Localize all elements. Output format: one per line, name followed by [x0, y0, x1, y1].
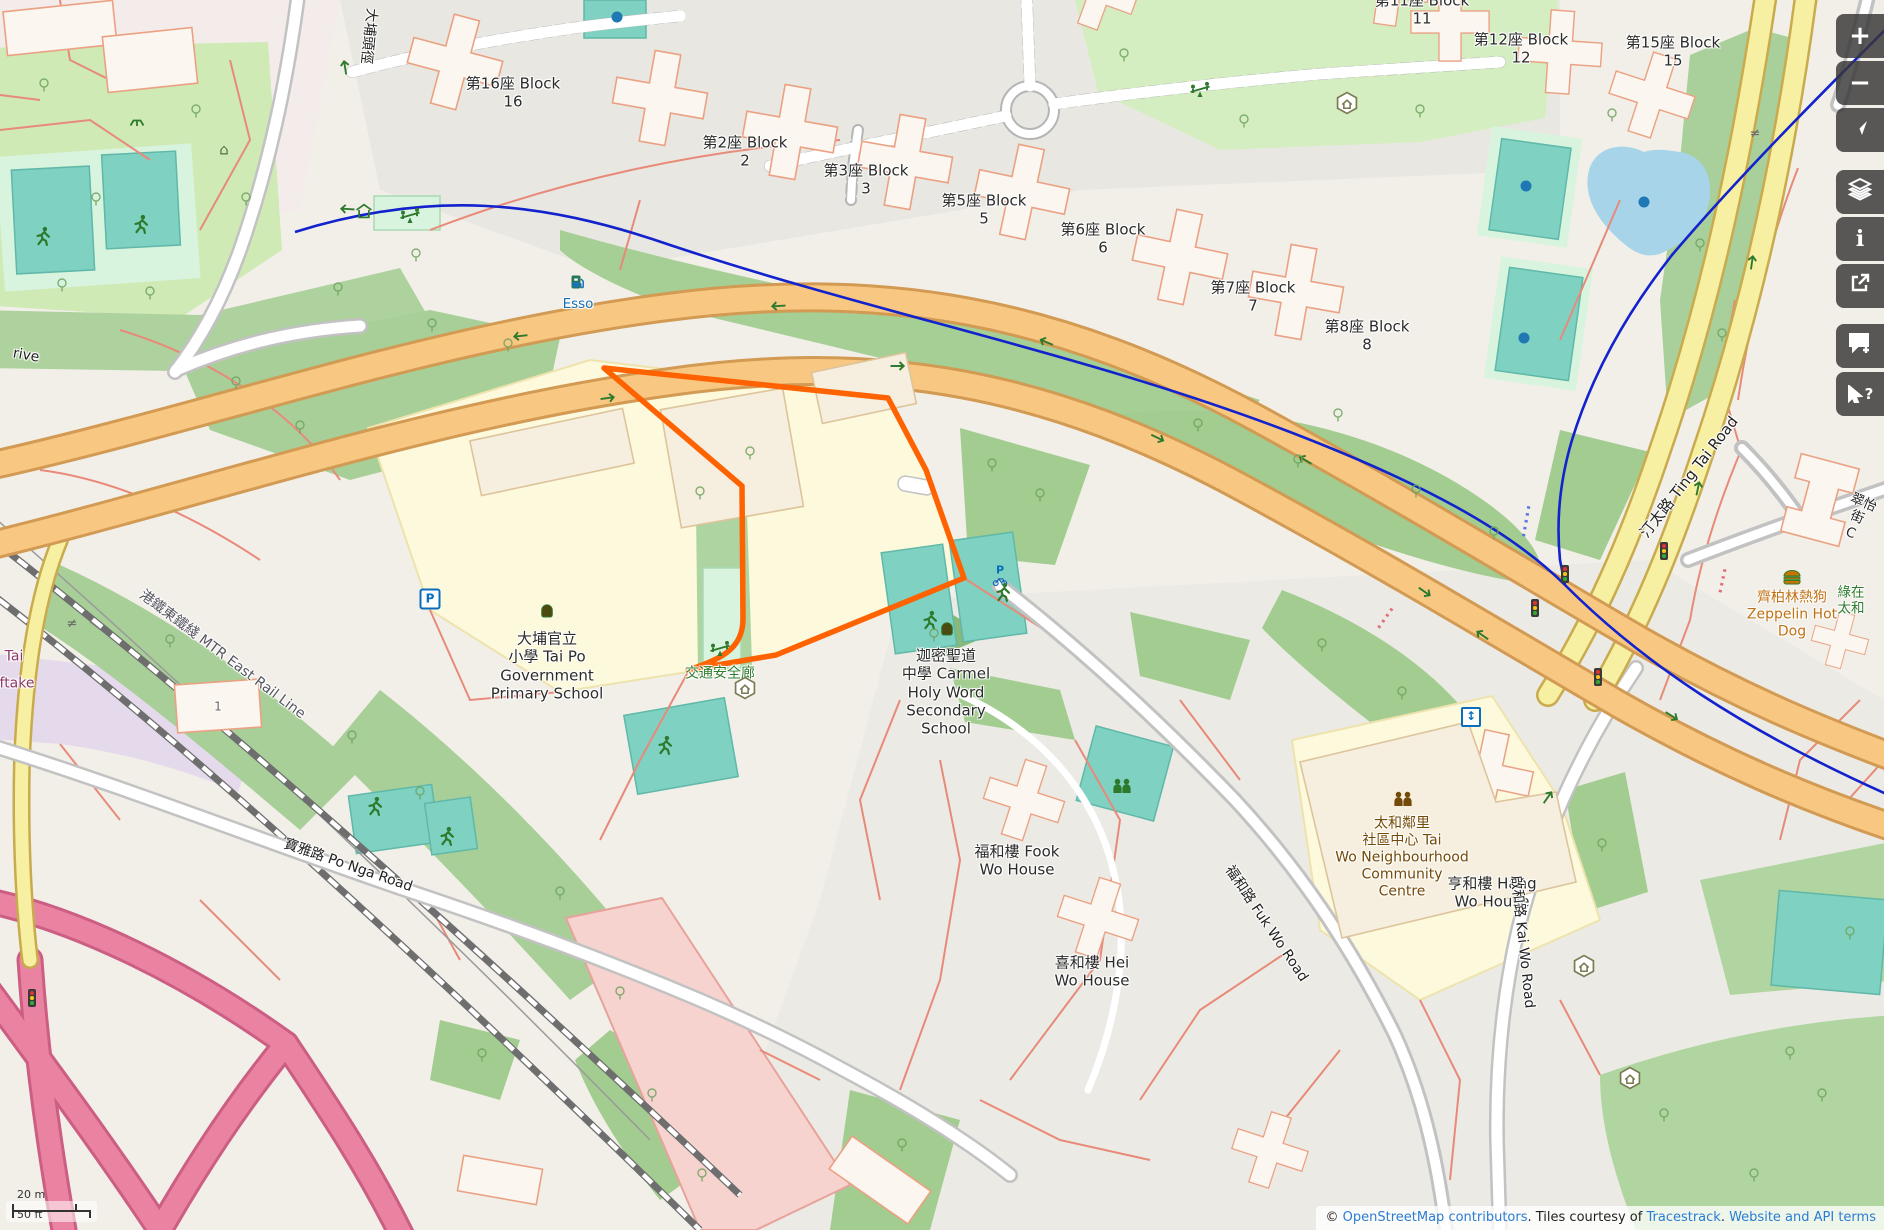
zoom-out-button[interactable]: − — [1836, 61, 1884, 105]
tree-icon — [1785, 1046, 1796, 1060]
tree-icon — [647, 1088, 658, 1102]
tree-icon — [1119, 48, 1130, 62]
elevator-icon: ↕ — [1461, 707, 1481, 727]
tree-icon — [1489, 526, 1500, 540]
attribution: © OpenStreetMap contributors. Tiles cour… — [1316, 1206, 1884, 1230]
tree-icon — [231, 376, 242, 390]
arrow-icon — [769, 300, 787, 312]
arrow-icon — [338, 203, 356, 215]
attribution-copyright: © — [1326, 1210, 1343, 1225]
shelter-icon — [356, 204, 373, 219]
fountain-icon — [1519, 333, 1530, 344]
tree-icon — [241, 192, 252, 206]
label-block-7: 第7座 Block 7 — [1211, 279, 1296, 316]
label-block-16: 第16座 Block 16 — [466, 75, 560, 112]
tree-icon — [987, 458, 998, 472]
community-icon — [1393, 792, 1414, 807]
traffic-light-icon — [28, 989, 36, 1007]
hexshelter-icon — [1573, 955, 1596, 978]
seesaw-icon — [708, 641, 732, 657]
school-icon — [939, 621, 956, 637]
tree-icon — [1659, 1108, 1670, 1122]
layers-button[interactable] — [1836, 170, 1884, 214]
fuel-icon — [570, 274, 586, 290]
tree-icon — [555, 886, 566, 900]
label-tai-fragment: Tai — [5, 648, 24, 665]
terms-link[interactable]: Website and API terms — [1729, 1210, 1876, 1225]
seesaw-icon — [1188, 82, 1212, 98]
label-block-11: 第11座 Block 11 — [1375, 0, 1469, 28]
tree-icon — [1317, 638, 1328, 652]
tree-icon — [929, 628, 940, 642]
label-block-12: 第12座 Block 12 — [1474, 31, 1568, 68]
runner-icon — [32, 226, 53, 247]
tree-icon — [1193, 418, 1204, 432]
tree-icon — [1607, 108, 1618, 122]
tracestrack-link[interactable]: Tracestrack — [1646, 1210, 1720, 1225]
label-block-3: 第3座 Block 3 — [824, 162, 909, 199]
arrow-icon — [511, 330, 529, 343]
tree-icon — [897, 1138, 908, 1152]
label-block-8: 第8座 Block 8 — [1325, 318, 1410, 355]
tree-icon — [1717, 328, 1728, 342]
add-note-button[interactable] — [1836, 324, 1884, 368]
query-features-button[interactable]: ? — [1836, 372, 1884, 416]
tree-icon — [745, 446, 756, 460]
tree-icon — [1695, 238, 1706, 252]
tree-icon — [1397, 686, 1408, 700]
runner-icon — [130, 214, 151, 235]
runner-icon — [992, 582, 1013, 603]
location-arrow-icon — [1850, 115, 1870, 145]
neq-icon: ≠ — [67, 618, 78, 631]
neq-icon: ≠ — [1750, 128, 1761, 141]
label-block-2: 第2座 Block 2 — [703, 134, 788, 171]
tree-icon — [1239, 114, 1250, 128]
hexshelter-icon — [734, 677, 757, 700]
scale-imperial: 50 ft — [12, 1210, 91, 1218]
zoom-in-button[interactable]: + — [1836, 14, 1884, 58]
tree-icon — [695, 486, 706, 500]
traffic-light-icon — [1594, 668, 1602, 686]
tree-icon — [503, 338, 514, 352]
tree-icon — [333, 282, 344, 296]
label-carmel-school: 迦密聖道 中學 Carmel Holy Word Secondary Schoo… — [902, 646, 990, 737]
traffic-light-icon — [1561, 565, 1569, 583]
tree-icon — [1845, 926, 1856, 940]
share-button[interactable] — [1836, 264, 1884, 308]
layers-icon — [1848, 177, 1872, 208]
tree-icon — [1817, 1088, 1828, 1102]
tree-icon — [411, 248, 422, 262]
traffic-light-icon — [1660, 542, 1668, 560]
tree-icon — [1415, 104, 1426, 118]
tree-icon — [295, 420, 306, 434]
hexshelter-icon — [1619, 1067, 1642, 1090]
label-building-1: 1 — [214, 700, 222, 715]
parking-icon: P — [420, 589, 441, 610]
tree-icon — [165, 634, 176, 648]
fountain-icon — [1639, 197, 1650, 208]
tree-icon — [415, 786, 426, 800]
tree-icon — [615, 986, 626, 1000]
school-icon — [539, 603, 556, 619]
label-esso: Esso — [563, 296, 594, 312]
label-fook-wo-house: 福和樓 Fook Wo House — [975, 843, 1060, 880]
query-cursor-icon: ? — [1847, 385, 1874, 403]
tree-icon — [697, 1168, 708, 1182]
tree-icon — [39, 78, 50, 92]
fountain-icon — [1521, 181, 1532, 192]
arrow-icon — [599, 391, 617, 404]
tree-icon — [91, 192, 102, 206]
osm-contributors-link[interactable]: OpenStreetMap contributors — [1343, 1210, 1528, 1225]
home-icon: ⌂ — [219, 143, 229, 158]
tree-icon — [1749, 1168, 1760, 1182]
runner-icon — [436, 826, 457, 847]
tree-icon — [1411, 484, 1422, 498]
tree-icon — [1035, 488, 1046, 502]
attribution-separator: . — [1721, 1210, 1729, 1225]
tree-icon — [347, 730, 358, 744]
share-icon — [1849, 271, 1871, 301]
label-block-6: 第6座 Block 6 — [1061, 221, 1146, 258]
map-canvas[interactable]: 第16座 Block 16第2座 Block 2第3座 Block 3第5座 B… — [0, 0, 1884, 1230]
show-location-button[interactable] — [1836, 108, 1884, 152]
label-tai-po-primary-school: 大埔官立 小學 Tai Po Government Primary School — [491, 629, 604, 702]
arrow-icon — [1745, 253, 1758, 271]
tree-icon — [145, 286, 156, 300]
tree-icon — [1333, 408, 1344, 422]
attribution-middle: . Tiles courtesy of — [1528, 1210, 1647, 1225]
pingpong-icon — [130, 117, 145, 128]
hexshelter-icon — [1336, 92, 1359, 115]
tree-icon — [191, 104, 202, 118]
label-block-5: 第5座 Block 5 — [942, 192, 1027, 229]
note-icon — [1848, 331, 1872, 361]
tree-icon — [1597, 838, 1608, 852]
scale-bar: 20 m 50 ft — [6, 1201, 97, 1222]
burger-icon — [1782, 570, 1803, 585]
label-green-at-tai-wo: 綠在太和 — [1835, 585, 1868, 618]
runner-icon — [654, 735, 675, 756]
fountain-icon — [612, 12, 623, 23]
arrow-icon — [890, 361, 907, 372]
tree-icon — [427, 318, 438, 332]
label-ftake-fragment: ftake — [0, 675, 34, 692]
traffic-light-icon — [1531, 599, 1539, 617]
seesaw-icon — [398, 208, 422, 224]
tree-icon — [1293, 454, 1304, 468]
runner-icon — [364, 796, 385, 817]
label-hei-wo-house: 喜和樓 Hei Wo House — [1055, 954, 1130, 991]
tree-icon — [57, 278, 68, 292]
label-block-15: 第15座 Block 15 — [1626, 34, 1720, 71]
label-zeppelin-hot-dog: 齊柏林熱狗 Zeppelin Hot Dog — [1747, 589, 1837, 640]
map-terrain — [0, 0, 1884, 1230]
map-info-button[interactable]: i — [1836, 217, 1884, 261]
community-icon — [1112, 779, 1133, 794]
tree-icon — [477, 1048, 488, 1062]
